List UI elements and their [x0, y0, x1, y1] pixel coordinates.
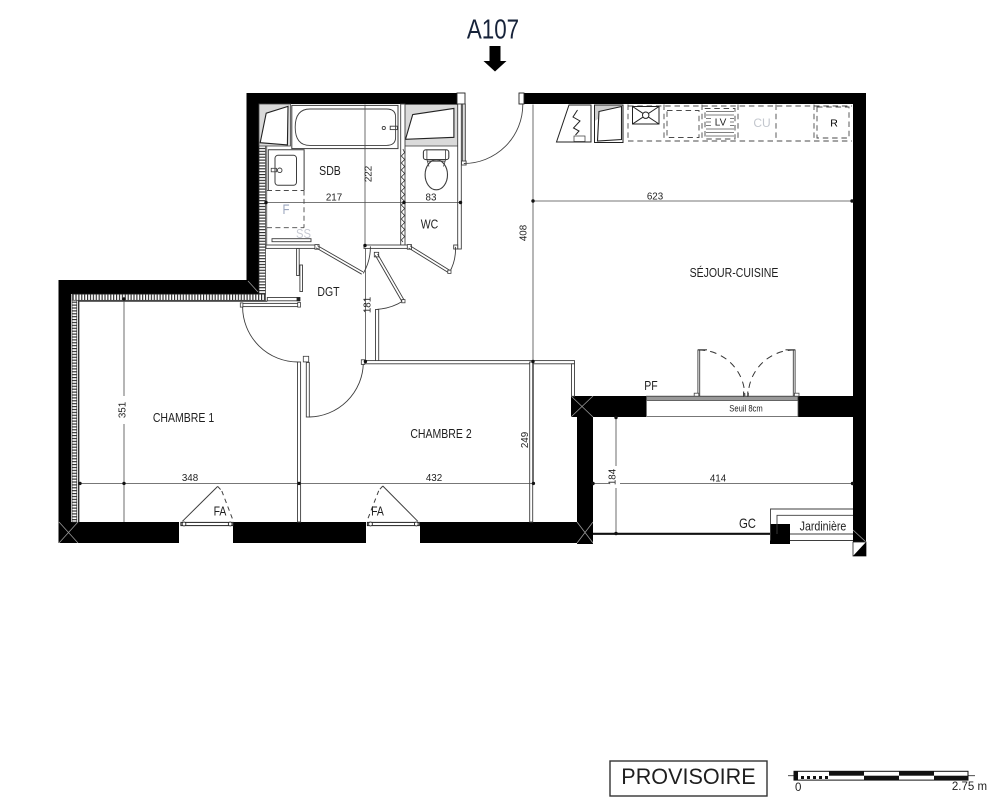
svg-text:414: 414	[710, 473, 727, 484]
svg-text:FA: FA	[214, 506, 227, 519]
svg-text:0: 0	[795, 782, 801, 794]
svg-text:348: 348	[182, 473, 199, 484]
svg-text:FA: FA	[371, 506, 384, 519]
svg-text:F: F	[282, 202, 289, 217]
svg-text:2.75 m: 2.75 m	[952, 781, 987, 793]
svg-text:351: 351	[118, 402, 129, 418]
svg-text:432: 432	[426, 473, 442, 484]
svg-text:CHAMBRE 1: CHAMBRE 1	[153, 410, 214, 425]
svg-text:408: 408	[519, 224, 530, 241]
svg-text:SÉJOUR-CUISINE: SÉJOUR-CUISINE	[690, 265, 779, 280]
svg-text:184: 184	[608, 468, 619, 485]
svg-text:LV: LV	[715, 118, 727, 129]
svg-text:WC: WC	[421, 216, 439, 231]
svg-text:Seuil 8cm: Seuil 8cm	[729, 403, 762, 414]
svg-text:217: 217	[326, 192, 342, 203]
svg-text:83: 83	[426, 192, 437, 203]
svg-text:181: 181	[363, 297, 374, 313]
svg-text:CHAMBRE 2: CHAMBRE 2	[410, 426, 471, 441]
svg-text:Jardinière: Jardinière	[800, 520, 847, 534]
svg-text:222: 222	[364, 166, 375, 182]
svg-text:GC: GC	[739, 515, 756, 531]
svg-text:A107: A107	[467, 14, 519, 45]
svg-text:249: 249	[520, 432, 531, 448]
svg-text:SDB: SDB	[319, 163, 341, 178]
svg-text:DGT: DGT	[317, 284, 339, 299]
svg-text:CU: CU	[753, 116, 770, 130]
svg-text:R: R	[830, 118, 838, 130]
svg-text:PROVISOIRE: PROVISOIRE	[621, 764, 755, 790]
svg-text:PF: PF	[644, 378, 657, 393]
svg-text:623: 623	[647, 191, 664, 202]
